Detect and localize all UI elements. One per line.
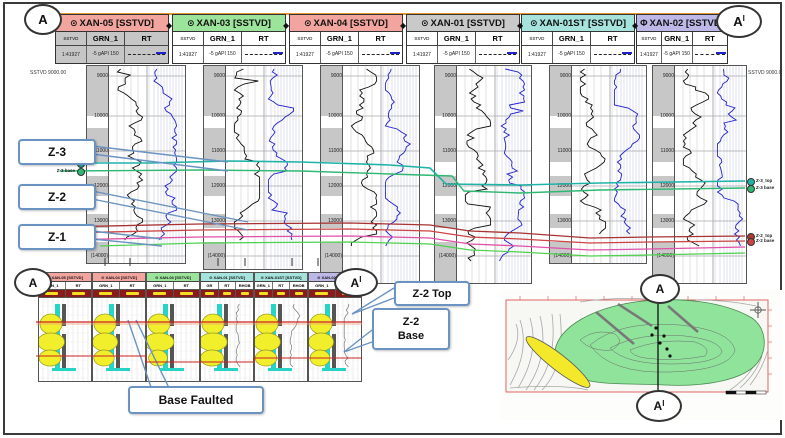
map-a-prime-label: A (654, 399, 663, 413)
inset-panel-body (255, 298, 307, 381)
log-track-plot (343, 66, 419, 283)
inset-log-plot (93, 298, 143, 381)
oil-zone (522, 331, 595, 393)
track-scales: 1:41927-5 gAPI 150 (407, 46, 519, 63)
inset-scale-bar (201, 290, 253, 298)
inset-col-grn_1: GRN_1 (93, 282, 119, 289)
column-header-rt: RT (241, 32, 285, 45)
contour-line (518, 318, 533, 388)
column-header-grn_1: GRN_1 (203, 32, 241, 45)
track-column-headers: SSTVDGRN_1RT (56, 32, 168, 46)
depth-tick-label: (14000) (554, 253, 571, 259)
endpoint-prime-sup: I (743, 14, 745, 23)
contour-line (542, 314, 561, 390)
inset-well-panel-1: ⊙ XAN-04 [SSTVD]GRN_1RT (92, 272, 146, 382)
inset-panel-body (93, 298, 145, 381)
depth-scale: 1:41927 (290, 52, 320, 58)
column-header-rt: RT (124, 32, 168, 45)
inset-scale-cell (255, 290, 272, 297)
inset-well-panel-3: ⊙ XAN-01 [SSTVD]GRRTRHOB (200, 272, 254, 382)
contour-line (740, 356, 762, 388)
inset-log-plot (147, 298, 197, 381)
gr-scale: -5 gAPI 150 (203, 46, 241, 63)
log-track-plot (457, 66, 531, 283)
inset-col-grn_1: GRN_1 (309, 282, 335, 289)
gr-scale: -5 gAPI 150 (86, 46, 124, 63)
depth-scale: 1:41927 (637, 52, 661, 58)
gr-scale: -5 gAPI 150 (437, 46, 475, 63)
track-scales: 1:41927-5 gAPI 150 (522, 46, 634, 63)
depth-tick-label: 11000 (328, 148, 342, 154)
depth-tick-label: (14000) (439, 253, 456, 259)
scale-bar (736, 391, 746, 394)
gr-curve (683, 69, 708, 246)
depth-tick-label: 9000 (445, 73, 456, 79)
log-track (108, 65, 186, 264)
endpoint-a-prime-label: A (733, 14, 742, 29)
connector-diamond-icon: ◆ (283, 21, 289, 30)
column-header-sstvd: SSTVD (522, 32, 552, 45)
depth-tick-label: 12000 (557, 183, 571, 189)
depth-track: 900010000110001200013000(14000) (652, 65, 676, 284)
contour-line-inner (580, 332, 619, 350)
inset-col-grn_1: GRN_1 (255, 282, 272, 289)
depth-scale: 1:41927 (56, 52, 86, 58)
depth-shading-band (550, 128, 572, 162)
column-header-rt: RT (692, 32, 727, 45)
depth-tick-label: 10000 (94, 113, 108, 119)
map-endpoint-a-prime: AI (636, 390, 682, 422)
inset-panel-body (309, 298, 361, 381)
log-track-plot (572, 66, 646, 263)
well-spot (668, 354, 671, 357)
depth-tick-label: 12000 (660, 183, 674, 189)
depth-tick-label: 9000 (214, 73, 225, 79)
contour-line (534, 314, 553, 390)
column-header-grn_1: GRN_1 (437, 32, 475, 45)
inset-column-headers: GRRTRHOB (201, 282, 253, 290)
depth-shading-band (321, 128, 343, 162)
map-a-label: A (656, 282, 665, 296)
track-column-headers: SSTVDGRN_1RT (290, 32, 402, 46)
depth-tick-label: 12000 (442, 183, 456, 189)
depth-shading-band (204, 128, 226, 162)
well-name-label: XAN-02 [SSTVD] (649, 18, 723, 29)
log-track-plot (226, 66, 302, 269)
scale-bar (756, 391, 766, 394)
depth-track: 900010000110001200013000(14000) (434, 65, 458, 284)
gr-curve (465, 69, 490, 261)
depth-tick-label: 9000 (331, 73, 342, 79)
inset-sand-lobe (310, 350, 330, 366)
inset-scale-cell (309, 290, 335, 297)
track-column-headers: SSTVDGRN_1RT (522, 32, 634, 46)
inset-scale-cell (235, 290, 253, 297)
depth-tick-label: 11000 (211, 148, 225, 154)
gr-curve (580, 69, 605, 234)
connector-diamond-icon: ◆ (166, 21, 172, 30)
section-endpoint-a: A (24, 4, 62, 35)
map-endpoint-a: A (640, 274, 680, 304)
inset-scale-cell (119, 290, 146, 297)
rt-scale-line (692, 46, 727, 63)
well-header-5: ΦXAN-02 [SSTVD]SSTVDGRN_1RT1:41927-5 gAP… (636, 14, 728, 64)
contour-line-inner (610, 335, 722, 364)
sstvd-scale-left: SSTVD 9000.00 (30, 70, 66, 76)
inset-col-rhob: RHOB (235, 282, 253, 289)
sstvd-scale-right: SSTVD 9000.00 (748, 70, 781, 76)
inset-rhob-curve (290, 304, 300, 367)
reservoir-outline (554, 300, 764, 386)
section-endpoint-a-prime: AI (716, 5, 762, 38)
inset-scale-cell (147, 290, 173, 297)
inset-sand-lobe (39, 333, 65, 351)
log-track (674, 65, 747, 284)
inset-endpoint-a-prime: AI (334, 268, 378, 297)
track-column-headers: SSTVDGRN_1RT (637, 32, 727, 46)
well-header-4: ⊙XAN-01ST [SSTVD]SSTVDGRN_1RT1:41927-5 g… (521, 14, 635, 64)
depth-tick-label: 11000 (442, 148, 456, 154)
inset-scale-cell (173, 290, 200, 297)
fault-trace (596, 312, 634, 344)
inset-log-plot (309, 298, 359, 381)
depth-tick-label: 9000 (663, 73, 674, 79)
fault-trace (668, 306, 698, 332)
depth-scale: 1:41927 (522, 52, 552, 58)
contour-line (510, 386, 588, 390)
inset-sand-lobe (94, 314, 116, 334)
inset-scale-cell (218, 290, 236, 297)
column-header-rt: RT (475, 32, 519, 45)
depth-shading-band (435, 242, 457, 283)
well-symbol-icon: ⊙ (421, 18, 429, 29)
contour-line-inner (590, 324, 735, 372)
track-column-headers: SSTVDGRN_1RT (173, 32, 285, 46)
callout-z2-base-line1: Z-2 (403, 315, 420, 329)
well-name: ΦXAN-02 [SSTVD] (637, 15, 727, 32)
inset-scale-bar (255, 290, 307, 298)
well-symbol-icon: ⊙ (530, 18, 538, 29)
callout-base-faulted: Base Faulted (128, 386, 264, 414)
column-header-sstvd: SSTVD (173, 32, 203, 45)
column-header-grn_1: GRN_1 (320, 32, 358, 45)
column-header-grn_1: GRN_1 (86, 32, 124, 45)
inset-sand-lobe (39, 350, 61, 366)
inset-scale-cell (289, 290, 307, 297)
depth-tick-label: 13000 (442, 218, 456, 224)
track-scales: 1:41927-5 gAPI 150 (173, 46, 285, 63)
column-header-sstvd: SSTVD (637, 32, 661, 45)
scale-bar (746, 391, 756, 394)
well-symbol-icon: ⊙ (304, 18, 312, 29)
log-track-plot (675, 66, 746, 283)
depth-scale: 1:41927 (173, 52, 203, 58)
inset-well-name: ⊙ XAN-01ST [SSTVD] (255, 273, 307, 282)
inset-prime-sup: I (359, 275, 361, 284)
gr-scale: -5 gAPI 150 (552, 46, 590, 63)
column-header-grn_1: GRN_1 (552, 32, 590, 45)
contour-line (730, 362, 756, 390)
log-track (342, 65, 420, 284)
fault-trace (618, 304, 652, 326)
depth-shading-band (435, 128, 457, 162)
column-header-grn_1: GRN_1 (661, 32, 692, 45)
marker-label-right: Z-3_top (756, 178, 772, 183)
column-header-sstvd: SSTVD (407, 32, 437, 45)
well-symbol-icon: Φ (640, 18, 647, 28)
inset-rhob-curve (236, 304, 240, 367)
marker-circle-left (77, 168, 85, 176)
marker-circle-right (747, 185, 755, 193)
inset-log-plot (201, 298, 251, 381)
inset-col-rt: RT (218, 282, 236, 289)
depth-tick-label: 10000 (557, 113, 571, 119)
inset-sand-lobe (149, 350, 168, 366)
well-name-label: XAN-01ST [SSTVD] (539, 18, 626, 29)
well-symbol-icon: ⊙ (70, 18, 78, 29)
figure-root: A AI SSTVD 9000.00 SSTVD 9000.00 ⊙XAN-05… (0, 0, 785, 438)
rt-scale-line (124, 46, 168, 63)
inset-well-name: ⊙ XAN-04 [SSTVD] (93, 273, 145, 282)
inset-sand-lobe (94, 350, 114, 366)
inset-well-panel-2: ⊙ XAN-03 [SSTVD]GRN_1RT (146, 272, 200, 382)
marker-label-right: Z-2 base (756, 238, 774, 243)
inset-panel-body (147, 298, 199, 381)
depth-track: 900010000110001200013000(14000) (320, 65, 344, 284)
gr-curve (117, 69, 142, 240)
rt-scale-line (241, 46, 285, 63)
track-scales: 1:41927-5 gAPI 150 (290, 46, 402, 63)
depth-tick-label: 13000 (211, 218, 225, 224)
inset-sand-lobe (310, 314, 332, 334)
inset-well-panel-4: ⊙ XAN-01ST [SSTVD]GRN_1RTRHOB (254, 272, 308, 382)
inset-sand-lobe (255, 350, 276, 366)
well-name: ⊙XAN-01ST [SSTVD] (522, 15, 634, 32)
inset-log-plot (39, 298, 89, 381)
well-spot (665, 347, 668, 350)
log-track (225, 65, 303, 270)
marker-label-right: Z-3 base (756, 185, 774, 190)
inset-sand-lobe (93, 333, 118, 351)
rt-scale-line (590, 46, 634, 63)
inset-a-label: A (29, 276, 38, 290)
inset-scale-cell (65, 290, 92, 297)
depth-tick-label: 9000 (97, 73, 108, 79)
depth-tick-label: 10000 (211, 113, 225, 119)
inset-endpoint-a: A (14, 268, 52, 297)
inset-well-name: ⊙ XAN-03 [SSTVD] (147, 273, 199, 282)
endpoint-a-label: A (38, 12, 47, 27)
well-name-label: XAN-05 [SSTVD] (80, 18, 154, 29)
inset-col-rt: RT (272, 282, 290, 289)
contour-line (510, 320, 523, 385)
well-name-label: XAN-04 [SSTVD] (314, 18, 388, 29)
callout-z2-base-line2: Base (398, 329, 424, 343)
well-header-3: ⊙XAN-01 [SSTVD]SSTVDGRN_1RT1:41927-5 gAP… (406, 14, 520, 64)
depth-tick-label: 12000 (94, 183, 108, 189)
depth-tick-label: (14000) (91, 253, 108, 259)
depth-tick-label: 9000 (560, 73, 571, 79)
contour-line (750, 350, 768, 385)
inset-col-rt: RT (119, 282, 146, 289)
depth-shading-band (653, 128, 675, 162)
map-prime-sup: I (662, 399, 664, 408)
depth-tick-label: 13000 (94, 218, 108, 224)
map-border (506, 300, 768, 392)
inset-col-gr: GR (201, 282, 218, 289)
depth-tick-label: (14000) (325, 253, 342, 259)
log-track (456, 65, 532, 284)
contour-line (508, 324, 518, 360)
log-track (571, 65, 647, 264)
inset-panel-body (201, 298, 253, 381)
depth-tick-label: 10000 (328, 113, 342, 119)
callout-z3: Z-3 (18, 139, 96, 165)
depth-tick-label: 12000 (211, 183, 225, 189)
inset-sand-lobe (202, 314, 224, 334)
inset-scale-cell (93, 290, 119, 297)
column-header-sstvd: SSTVD (56, 32, 86, 45)
track-scales: 1:41927-5 gAPI 150 (637, 46, 727, 63)
callout-z2-base: Z-2 Base (372, 308, 450, 350)
inset-well-name: ⊙ XAN-01 [SSTVD] (201, 273, 253, 282)
well-name: ⊙XAN-05 [SSTVD] (56, 15, 168, 32)
well-spot (662, 334, 665, 337)
depth-tick-label: 12000 (328, 183, 342, 189)
depth-tick-label: 11000 (557, 148, 571, 154)
contour-line (526, 316, 543, 390)
depth-tick-label: (14000) (657, 253, 674, 259)
depth-tick-label: 13000 (328, 218, 342, 224)
column-header-sstvd: SSTVD (290, 32, 320, 45)
well-header-1: ⊙XAN-03 [SSTVD]SSTVDGRN_1RT1:41927-5 gAP… (172, 14, 286, 64)
gr-curve (351, 69, 376, 246)
inset-col-rt: RT (173, 282, 200, 289)
inset-sand-lobe (255, 333, 280, 351)
well-name-label: XAN-03 [SSTVD] (197, 18, 271, 29)
inset-column-headers: GRN_1RT (93, 282, 145, 290)
depth-tick-label: (14000) (208, 253, 225, 259)
gr-curve (234, 69, 259, 240)
inset-scale-bar (147, 290, 199, 298)
contour-line (696, 300, 756, 306)
rt-scale-line (358, 46, 402, 63)
log-track-plot (109, 66, 185, 263)
callout-z2: Z-2 (18, 184, 96, 210)
inset-sand-lobe (201, 333, 227, 351)
connector-diamond-icon: ◆ (632, 21, 638, 30)
inset-sand-lobe (309, 333, 334, 351)
depth-tick-label: 10000 (442, 113, 456, 119)
scale-bar (726, 391, 736, 394)
depth-tick-label: 13000 (660, 218, 674, 224)
marker-circle-right (747, 238, 755, 246)
inset-panel-body (39, 298, 91, 381)
inset-scale-cell (201, 290, 218, 297)
rt-scale-line (475, 46, 519, 63)
inset-sand-lobe (256, 314, 278, 334)
inset-scale-cell (272, 290, 290, 297)
inset-scale-bar (93, 290, 145, 298)
connector-diamond-icon: ◆ (400, 21, 406, 30)
depth-tick-label: 13000 (557, 218, 571, 224)
callout-z2-top: Z-2 Top (394, 281, 470, 306)
inset-sand-lobe (148, 314, 170, 334)
horizon-lower-green (100, 242, 745, 256)
connector-diamond-icon: ◆ (517, 21, 523, 30)
inset-sand-lobe (201, 350, 224, 366)
inset-column-headers: GRN_1RT (147, 282, 199, 290)
gr-scale: -5 gAPI 150 (320, 46, 358, 63)
marker-label-left: Z-3 base (40, 168, 75, 173)
gr-scale: -5 gAPI 150 (661, 46, 692, 63)
well-name: ⊙XAN-03 [SSTVD] (173, 15, 285, 32)
depth-tick-label: 10000 (660, 113, 674, 119)
callout-z1: Z-1 (18, 224, 96, 250)
well-header-2: ⊙XAN-04 [SSTVD]SSTVDGRN_1RT1:41927-5 gAP… (289, 14, 403, 64)
inset-column-headers: GRN_1RTRHOB (255, 282, 307, 290)
well-spot (658, 341, 661, 344)
track-scales: 1:41927-5 gAPI 150 (56, 46, 168, 63)
inset-col-rt: RT (65, 282, 92, 289)
depth-track: 900010000110001200013000(14000) (203, 65, 227, 270)
inset-log-plot (255, 298, 305, 381)
contour-line-inner (630, 341, 707, 360)
inset-sand-lobe (147, 333, 174, 351)
column-header-rt: RT (358, 32, 402, 45)
well-name-label: XAN-01 [SSTVD] (431, 18, 505, 29)
track-column-headers: SSTVDGRN_1RT (407, 32, 519, 46)
well-header-0: ⊙XAN-05 [SSTVD]SSTVDGRN_1RT1:41927-5 gAP… (55, 14, 169, 64)
column-header-rt: RT (590, 32, 634, 45)
well-spot (654, 326, 657, 329)
depth-scale: 1:41927 (407, 52, 437, 58)
inset-a-prime-label: A (351, 276, 360, 290)
inset-col-grn_1: GRN_1 (147, 282, 173, 289)
depth-track: 900010000110001200013000(14000) (549, 65, 573, 264)
depth-tick-label: 11000 (94, 148, 108, 154)
inset-col-rhob: RHOB (289, 282, 307, 289)
depth-tick-label: 11000 (660, 148, 674, 154)
well-spot (650, 333, 653, 336)
inset-sand-lobe (40, 314, 62, 334)
well-name: ⊙XAN-04 [SSTVD] (290, 15, 402, 32)
well-name: ⊙XAN-01 [SSTVD] (407, 15, 519, 32)
well-symbol-icon: ⊙ (187, 18, 195, 29)
